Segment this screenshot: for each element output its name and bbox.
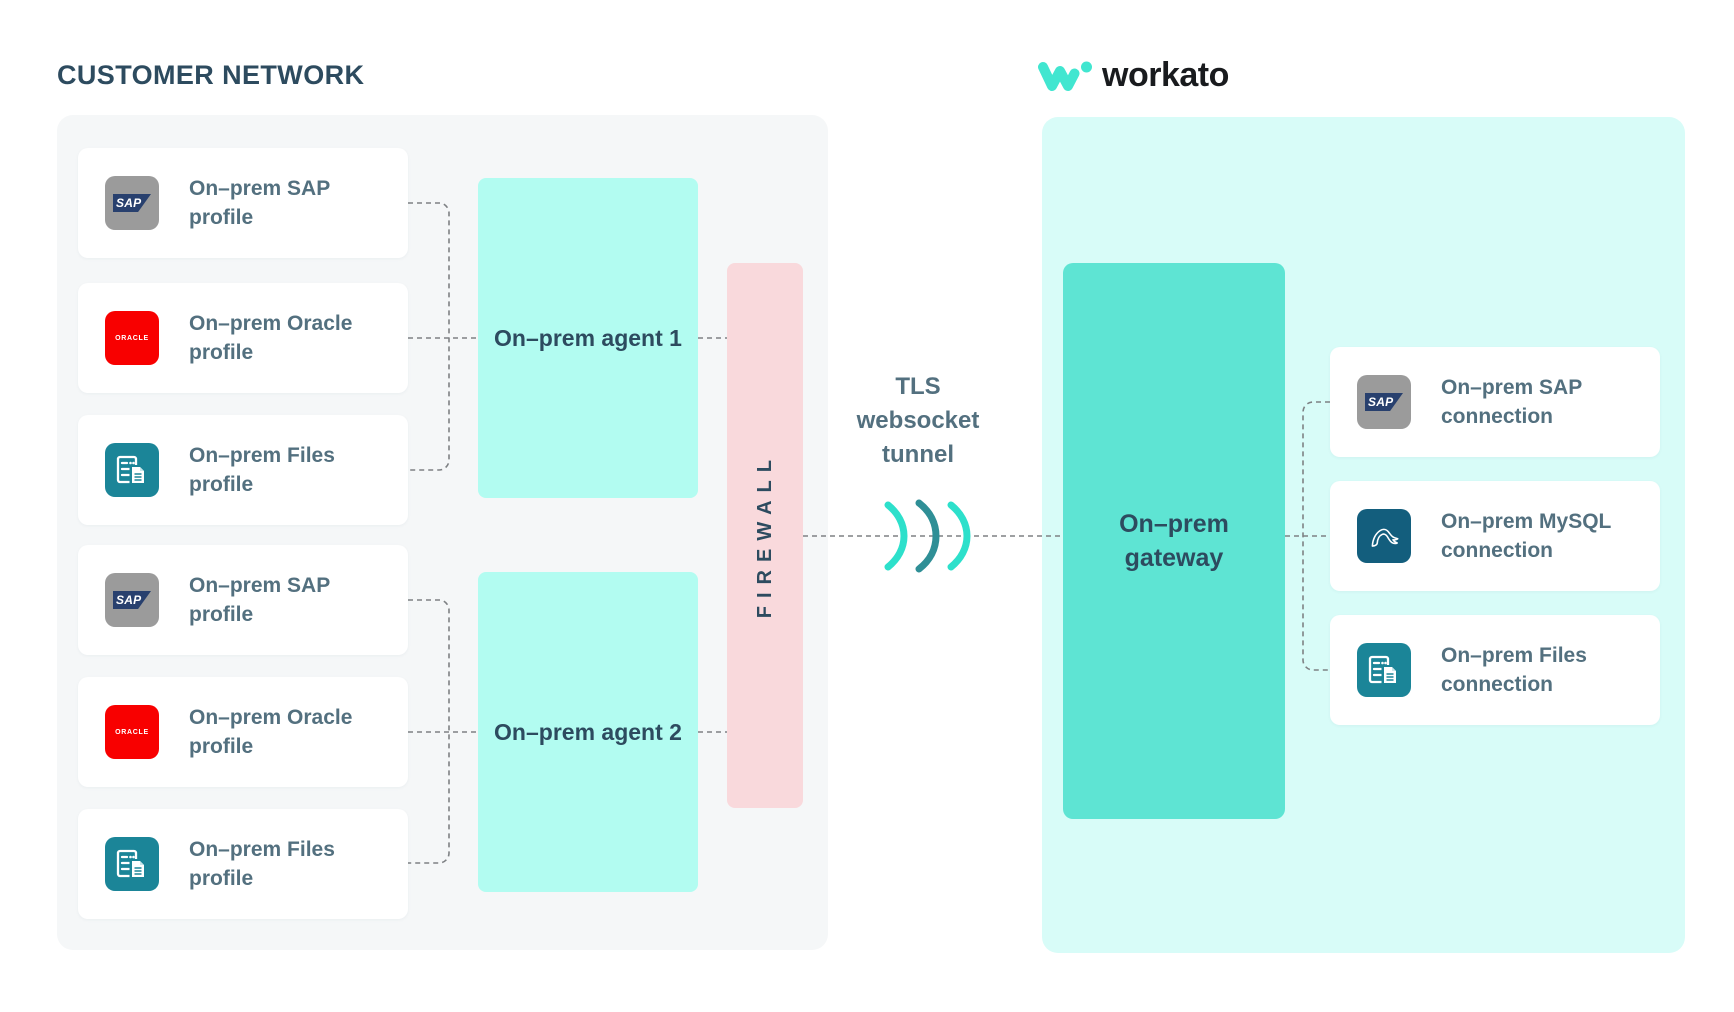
- architecture-diagram: CUSTOMER NETWORK SAP On–prem SAPprofile …: [0, 0, 1734, 1012]
- oracle-icon: ORACLE: [105, 705, 159, 759]
- sap-icon: SAP: [105, 573, 159, 627]
- oracle-logo-text: ORACLE: [115, 729, 149, 736]
- gateway-label: On–prem gateway: [1119, 507, 1229, 575]
- sap-icon: SAP: [1357, 375, 1411, 429]
- profile-card-oracle-2: ORACLE On–prem Oracleprofile: [78, 677, 408, 787]
- profile-card-sap-2: SAP On–prem SAPprofile: [78, 545, 408, 655]
- connection-card-label: On–prem Filesconnection: [1441, 641, 1587, 699]
- connection-card-label: On–prem MySQLconnection: [1441, 507, 1611, 565]
- agent-2-label: On–prem agent 2: [494, 719, 682, 746]
- profile-card-oracle-1: ORACLE On–prem Oracleprofile: [78, 283, 408, 393]
- sap-logo-text: SAP: [113, 196, 141, 210]
- connection-card-mysql: On–prem MySQLconnection: [1330, 481, 1660, 591]
- files-icon: [1357, 643, 1411, 697]
- oracle-logo-text: ORACLE: [115, 335, 149, 342]
- profile-card-files-2: On–prem Filesprofile: [78, 809, 408, 919]
- profile-card-label: On–prem Oracleprofile: [189, 309, 352, 367]
- tls-websocket-tunnel-label: TLS websocket tunnel: [818, 370, 1018, 472]
- profile-card-label: On–prem Filesprofile: [189, 441, 335, 499]
- firewall-label: FIREWALL: [754, 452, 777, 618]
- on-prem-gateway-box: On–prem gateway: [1063, 263, 1285, 819]
- dashed-connector-group1: [408, 203, 449, 470]
- firewall-bar: FIREWALL: [727, 263, 803, 808]
- profile-card-files-1: On–prem Filesprofile: [78, 415, 408, 525]
- files-icon: [105, 837, 159, 891]
- agent-1-label: On–prem agent 1: [494, 325, 682, 352]
- workato-logo-text: workato: [1102, 56, 1229, 95]
- connection-card-sap: SAP On–prem SAPconnection: [1330, 347, 1660, 457]
- connection-card-label: On–prem SAPconnection: [1441, 373, 1582, 431]
- oracle-icon: ORACLE: [105, 311, 159, 365]
- sap-logo-text: SAP: [113, 593, 141, 607]
- profile-card-label: On–prem SAPprofile: [189, 174, 330, 232]
- profile-card-label: On–prem Filesprofile: [189, 835, 335, 893]
- connection-card-files: On–prem Filesconnection: [1330, 615, 1660, 725]
- sap-icon: SAP: [105, 176, 159, 230]
- on-prem-agent-2-box: On–prem agent 2: [478, 572, 698, 892]
- sap-logo-text: SAP: [1365, 395, 1393, 409]
- workato-logo: workato: [1038, 56, 1229, 95]
- workato-logo-mark-icon: [1038, 57, 1094, 95]
- profile-card-sap-1: SAP On–prem SAPprofile: [78, 148, 408, 258]
- files-icon: [105, 443, 159, 497]
- profile-card-label: On–prem SAPprofile: [189, 571, 330, 629]
- on-prem-agent-1-box: On–prem agent 1: [478, 178, 698, 498]
- profile-card-label: On–prem Oracleprofile: [189, 703, 352, 761]
- mysql-icon: [1357, 509, 1411, 563]
